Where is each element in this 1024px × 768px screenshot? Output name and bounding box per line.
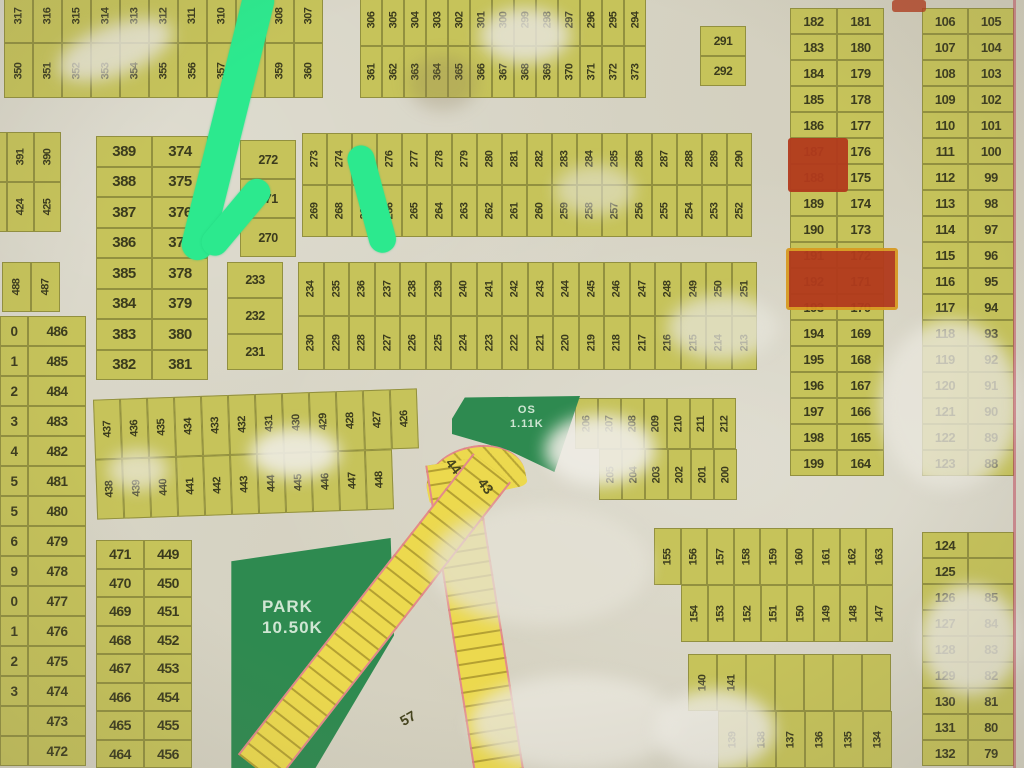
plot-cell xyxy=(0,736,28,766)
plot-cell: 233 xyxy=(227,262,283,298)
plot-cell: 350 xyxy=(4,43,33,98)
plot-row: 384379 xyxy=(96,289,208,320)
plot-row: 124 xyxy=(922,532,1014,558)
plot-number: 190 xyxy=(803,222,823,237)
plot-number: 455 xyxy=(157,717,179,733)
plot-cell: 182 xyxy=(790,8,837,34)
plot-number: 99 xyxy=(984,170,997,185)
plot-cell: 125 xyxy=(922,558,968,584)
plot-row: 12388 xyxy=(922,450,1014,476)
park-size-label: 10.50K xyxy=(262,617,323,638)
plot-row: 11893 xyxy=(922,320,1014,346)
plot-number: 424 xyxy=(14,199,26,216)
plot-cell: 450 xyxy=(144,569,192,598)
plot-number: 378 xyxy=(168,265,192,282)
plot-row: 466454 xyxy=(96,683,192,712)
plot-cell: 200 xyxy=(714,449,737,500)
plot-number: 270 xyxy=(258,231,277,245)
plot-row: 196167 xyxy=(790,372,884,398)
plot-cell: 287 xyxy=(652,133,677,185)
plot-number: 124 xyxy=(935,538,955,553)
plot-cell: 276 xyxy=(377,133,402,185)
plot-cell: 386 xyxy=(96,228,152,259)
plot-number: 237 xyxy=(381,281,393,298)
plot-row: 471449 xyxy=(96,540,192,569)
plot-row: 468452 xyxy=(96,626,192,655)
plot-number: 250 xyxy=(713,281,725,298)
plot-row: 12190 xyxy=(922,398,1014,424)
plot-number: 441 xyxy=(184,478,197,495)
plot-number: 136 xyxy=(813,731,825,748)
plot-cell: 300 xyxy=(492,0,514,46)
plot-cell: 381 xyxy=(152,350,208,381)
plot-cell: 265 xyxy=(402,185,427,237)
plot-number: 82 xyxy=(984,668,997,683)
plot-number: 222 xyxy=(509,335,521,352)
plot-cell: 454 xyxy=(144,683,192,712)
plot-row: 391390 xyxy=(0,132,61,182)
plot-number: 312 xyxy=(157,7,169,24)
plot-cell: 212 xyxy=(713,398,736,449)
plot-number: 83 xyxy=(984,642,997,657)
plot-cell: 139 xyxy=(718,711,747,768)
plot-cell: 131 xyxy=(922,714,968,740)
plot-number: 383 xyxy=(112,326,136,343)
plot-cell: 106 xyxy=(922,8,968,34)
plot-row: 12784 xyxy=(922,610,1014,636)
plot-number: 360 xyxy=(302,62,314,79)
plot-number: 116 xyxy=(935,274,954,289)
plot-cell: 190 xyxy=(790,216,837,242)
plot-cell: 156 xyxy=(681,528,708,585)
plot-number: 80 xyxy=(984,720,997,735)
plot-cell: 178 xyxy=(837,86,884,112)
plot-cell: 307 xyxy=(294,0,323,43)
plot-cell: 360 xyxy=(294,43,323,98)
plot-cell xyxy=(0,182,7,232)
plot-number: 425 xyxy=(41,199,53,216)
plot-number: 484 xyxy=(46,384,67,399)
plot-number: 256 xyxy=(633,203,645,220)
plot-number: 6 xyxy=(10,534,17,549)
plot-number: 359 xyxy=(273,62,285,79)
plot-cell: 114 xyxy=(922,216,968,242)
map-boundary-line xyxy=(1013,0,1016,768)
plot-number: 456 xyxy=(157,746,179,762)
plot-cell: 160 xyxy=(787,528,814,585)
plot-cell: 202 xyxy=(668,449,691,500)
plot-cell: 378 xyxy=(152,258,208,289)
plot-number: 4 xyxy=(10,444,17,459)
plot-row: 12883 xyxy=(922,636,1014,662)
plot-number: 297 xyxy=(563,12,575,29)
plot-cell: 151 xyxy=(761,585,788,642)
plot-number: 472 xyxy=(46,744,67,759)
plot-number: 138 xyxy=(755,731,767,748)
plot-number: 85 xyxy=(984,590,997,605)
plot-cell: 223 xyxy=(477,316,503,370)
plot-number: 486 xyxy=(46,324,67,339)
plot-row: 11497 xyxy=(922,216,1014,242)
plot-cell: 371 xyxy=(580,46,602,98)
block-291: 291292 xyxy=(700,26,746,86)
plot-cell: 138 xyxy=(747,711,776,768)
plot-cell: 352 xyxy=(62,43,91,98)
plot-cell: 249 xyxy=(681,262,707,316)
block-206: 206207208209210211212205204203202201200 xyxy=(575,398,736,500)
plot-cell: 84 xyxy=(968,610,1014,636)
plot-number: 219 xyxy=(585,335,597,352)
plot-row: 195168 xyxy=(790,346,884,372)
plot-cell: 96 xyxy=(968,242,1014,268)
plot-cell: 237 xyxy=(375,262,401,316)
plot-number: 434 xyxy=(182,418,195,435)
plot-cell: 439 xyxy=(122,458,151,519)
plot-cell: 483 xyxy=(28,406,86,436)
plot-number: 149 xyxy=(821,605,833,622)
plot-number: 231 xyxy=(245,345,264,359)
plot-cell: 205 xyxy=(599,449,622,500)
plot-cell: 317 xyxy=(4,0,33,43)
plot-cell: 261 xyxy=(502,185,527,237)
plot-number: 295 xyxy=(607,12,619,29)
plot-number: 389 xyxy=(112,143,136,160)
plot-number: 184 xyxy=(803,66,823,81)
plot-number: 104 xyxy=(981,40,1001,55)
plot-number: 487 xyxy=(39,279,51,296)
plot-cell: 305 xyxy=(382,0,404,46)
plot-number: 251 xyxy=(738,281,750,298)
plot-number: 290 xyxy=(733,151,745,168)
plot-cell: 163 xyxy=(866,528,893,585)
plot-cell: 166 xyxy=(837,398,884,424)
plot-number: 303 xyxy=(431,12,443,29)
plot-cell: 424 xyxy=(7,182,34,232)
plot-number: 306 xyxy=(365,12,377,29)
plot-cell: 304 xyxy=(404,0,426,46)
plot-cell: 134 xyxy=(863,711,892,768)
plot-cell: 225 xyxy=(426,316,452,370)
plot-cell: 219 xyxy=(579,316,605,370)
plot-number: 95 xyxy=(984,274,997,289)
plot-number: 362 xyxy=(387,64,399,81)
plot-row: 205204203202201200 xyxy=(599,449,737,500)
plot-cell: 210 xyxy=(667,398,690,449)
plot-cell: 198 xyxy=(790,424,837,450)
plot-number: 176 xyxy=(850,144,870,159)
plot-cell: 169 xyxy=(837,320,884,346)
plot-number: 384 xyxy=(112,295,136,312)
plot-number: 213 xyxy=(738,335,750,352)
plot-cell: 452 xyxy=(144,626,192,655)
plot-number: 433 xyxy=(209,417,222,434)
plot-number: 285 xyxy=(608,151,620,168)
plot-number: 180 xyxy=(850,40,870,55)
plot-cell: 152 xyxy=(734,585,761,642)
plot-number: 126 xyxy=(935,590,955,605)
plot-cell: 183 xyxy=(790,34,837,60)
plot-cell: 467 xyxy=(96,654,144,683)
plot-cell: 185 xyxy=(790,86,837,112)
plot-number: 436 xyxy=(128,420,141,437)
plot-cell: 9 xyxy=(0,556,28,586)
plot-cell: 470 xyxy=(96,569,144,598)
plot-cell: 310 xyxy=(207,0,236,43)
plot-cell: 263 xyxy=(452,185,477,237)
plot-number: 111 xyxy=(936,144,955,159)
plot-number: 470 xyxy=(109,575,131,591)
plot-cell: 294 xyxy=(624,0,646,46)
plot-number: 121 xyxy=(935,404,955,419)
plot-cell: 150 xyxy=(787,585,814,642)
plot-cell: 284 xyxy=(577,133,602,185)
plot-number: 435 xyxy=(155,419,168,436)
plot-number: 234 xyxy=(305,281,317,298)
plot-cell: 119 xyxy=(922,346,968,372)
plot-cell: 97 xyxy=(968,216,1014,242)
plot-number: 387 xyxy=(112,204,136,221)
plot-number: 167 xyxy=(850,378,870,393)
plot-number: 122 xyxy=(935,430,955,445)
plot-cell: 111 xyxy=(922,138,968,164)
block-437: 4374364354344334324314304294284274264384… xyxy=(93,388,421,519)
plot-number: 196 xyxy=(803,378,823,393)
plot-cell: 288 xyxy=(677,133,702,185)
plot-cell: 253 xyxy=(702,185,727,237)
plot-number: 169 xyxy=(850,326,870,341)
plot-number: 371 xyxy=(585,64,597,81)
plot-number: 302 xyxy=(453,12,465,29)
plot-cell: 127 xyxy=(922,610,968,636)
plot-number: 308 xyxy=(273,7,285,24)
plot-cell: 211 xyxy=(690,398,713,449)
plot-cell: 298 xyxy=(536,0,558,46)
plot-number: 233 xyxy=(245,273,264,287)
plot-number: 2 xyxy=(10,384,17,399)
plot-number: 351 xyxy=(41,62,53,79)
plot-cell: 260 xyxy=(527,185,552,237)
plot-cell: 105 xyxy=(968,8,1014,34)
plot-cell: 153 xyxy=(708,585,735,642)
plot-row: 140141 xyxy=(688,654,891,711)
plot-cell: 477 xyxy=(28,586,86,616)
plot-number: 150 xyxy=(794,605,806,622)
plot-number: 209 xyxy=(649,415,661,432)
plot-cell: 431 xyxy=(255,393,284,454)
plot-cell: 453 xyxy=(144,654,192,683)
plot-cell: 199 xyxy=(790,450,837,476)
plot-cell xyxy=(0,132,7,182)
plot-number: 160 xyxy=(794,548,806,565)
plot-cell: 184 xyxy=(790,60,837,86)
plot-cell: 94 xyxy=(968,294,1014,320)
plot-row: 190173 xyxy=(790,216,884,242)
plot-cell xyxy=(968,532,1014,558)
plot-number: 259 xyxy=(558,203,570,220)
plot-number: 5 xyxy=(10,504,17,519)
plot-number: 292 xyxy=(714,64,733,78)
plot-number: 238 xyxy=(407,281,419,298)
plot-number: 264 xyxy=(433,203,445,220)
plot-cell: 283 xyxy=(552,133,577,185)
plot-cell: 82 xyxy=(968,662,1014,688)
plot-cell: 434 xyxy=(174,396,203,457)
plot-cell: 135 xyxy=(834,711,863,768)
plot-cell: 216 xyxy=(655,316,681,370)
plot-cell: 356 xyxy=(178,43,207,98)
plot-cell: 149 xyxy=(814,585,841,642)
highlighted-plots-191-192 xyxy=(786,248,898,310)
plot-number: 247 xyxy=(636,281,648,298)
plot-cell xyxy=(862,654,891,711)
plot-cell: 246 xyxy=(604,262,630,316)
plot-number: 352 xyxy=(70,62,82,79)
plot-cell: 1 xyxy=(0,346,28,376)
plot-number: 97 xyxy=(984,222,997,237)
plot-number: 482 xyxy=(46,444,67,459)
plot-number: 379 xyxy=(168,295,192,312)
plot-cell: 430 xyxy=(282,392,311,453)
plot-cell: 100 xyxy=(968,138,1014,164)
plot-number: 373 xyxy=(629,64,641,81)
plot-cell: 161 xyxy=(813,528,840,585)
plot-number: 429 xyxy=(317,413,330,430)
plot-number: 135 xyxy=(842,731,854,748)
plot-cell: 427 xyxy=(363,389,392,450)
plot-number: 221 xyxy=(534,335,546,352)
plot-cell: 91 xyxy=(968,372,1014,398)
plot-cell: 465 xyxy=(96,711,144,740)
plot-number: 464 xyxy=(109,746,131,762)
plot-number: 131 xyxy=(935,720,955,735)
plot-cell: 472 xyxy=(28,736,86,766)
plot-number: 276 xyxy=(383,151,395,168)
plot-number: 298 xyxy=(541,12,553,29)
plot-row: 13081 xyxy=(922,688,1014,714)
plot-cell: 154 xyxy=(681,585,708,642)
plot-cell: 359 xyxy=(265,43,294,98)
plot-number: 93 xyxy=(984,326,997,341)
plot-cell: 189 xyxy=(790,190,837,216)
plot-number: 228 xyxy=(356,335,368,352)
plot-row: 469451 xyxy=(96,597,192,626)
plot-cell: 115 xyxy=(922,242,968,268)
plot-cell: 103 xyxy=(968,60,1014,86)
plot-cell: 95 xyxy=(968,268,1014,294)
plot-number: 127 xyxy=(935,616,955,631)
plot-cell: 141 xyxy=(717,654,746,711)
plot-cell: 239 xyxy=(426,262,452,316)
plot-cell: 488 xyxy=(2,262,31,312)
plot-number: 240 xyxy=(458,281,470,298)
plot-row: 2342352362372382392402412422432442452462… xyxy=(298,262,757,316)
plot-number: 84 xyxy=(984,616,997,631)
plot-number: 120 xyxy=(935,378,955,393)
plot-number: 155 xyxy=(661,548,673,565)
plot-cell: 391 xyxy=(7,132,34,182)
plot-number: 367 xyxy=(497,64,509,81)
plot-cell: 373 xyxy=(624,46,646,98)
plot-cell: 443 xyxy=(230,454,259,515)
plot-number: 139 xyxy=(726,731,738,748)
plot-number: 159 xyxy=(767,548,779,565)
plot-row: 350351352353354355356357358359360 xyxy=(4,43,323,98)
plot-number: 105 xyxy=(981,14,1001,29)
plot-number: 0 xyxy=(10,594,17,609)
plot-number: 280 xyxy=(483,151,495,168)
plot-number: 310 xyxy=(215,7,227,24)
plot-cell: 232 xyxy=(227,298,283,334)
plot-number: 473 xyxy=(46,714,67,729)
plot-cell: 174 xyxy=(837,190,884,216)
plot-row: 11695 xyxy=(922,268,1014,294)
plot-cell xyxy=(746,654,775,711)
plot-number: 364 xyxy=(431,64,443,81)
plot-number: 134 xyxy=(871,731,883,748)
plot-row: 361362363364365366367368369370371372373 xyxy=(360,46,646,98)
plot-number: 284 xyxy=(583,151,595,168)
plot-cell: 0 xyxy=(0,316,28,346)
plot-cell: 155 xyxy=(654,528,681,585)
plot-cell: 180 xyxy=(837,34,884,60)
plot-cell: 473 xyxy=(28,706,86,736)
plot-number: 199 xyxy=(803,456,823,471)
plot-number: 257 xyxy=(608,203,620,220)
plot-number: 254 xyxy=(683,203,695,220)
plot-number: 182 xyxy=(803,14,823,29)
plot-cell: 129 xyxy=(922,662,968,688)
plot-number: 166 xyxy=(850,404,870,419)
plot-cell: 113 xyxy=(922,190,968,216)
edge-488: 488487 xyxy=(2,262,60,312)
plot-cell xyxy=(833,654,862,711)
plot-row: 12685 xyxy=(922,584,1014,610)
plot-number: 98 xyxy=(984,196,997,211)
plot-number: 475 xyxy=(46,654,67,669)
plot-number: 3 xyxy=(10,414,17,429)
plot-cell: 285 xyxy=(602,133,627,185)
plot-cell: 487 xyxy=(31,262,60,312)
plot-cell: 432 xyxy=(228,394,257,455)
plot-number: 258 xyxy=(583,203,595,220)
plot-number: 474 xyxy=(46,684,67,699)
plot-cell: 90 xyxy=(968,398,1014,424)
plot-cell: 291 xyxy=(700,26,746,56)
plot-number: 236 xyxy=(356,281,368,298)
plot-cell: 466 xyxy=(96,683,144,712)
plot-row: 139138137136135134 xyxy=(718,711,892,768)
plot-cell: 256 xyxy=(627,185,652,237)
plot-number: 445 xyxy=(292,474,305,491)
plot-number: 130 xyxy=(935,694,955,709)
plot-number: 268 xyxy=(333,203,345,220)
plot-cell: 230 xyxy=(298,316,324,370)
plot-number: 108 xyxy=(935,66,955,81)
plot-cell: 264 xyxy=(427,185,452,237)
plot-number: 3 xyxy=(10,684,17,699)
plot-number: 89 xyxy=(984,430,997,445)
plot-cell: 83 xyxy=(968,636,1014,662)
plot-number: 204 xyxy=(627,466,639,483)
plot-cell: 384 xyxy=(96,289,152,320)
plot-cell: 444 xyxy=(257,453,286,514)
plot-number: 218 xyxy=(611,335,623,352)
plot-cell: 101 xyxy=(968,112,1014,138)
plot-number: 444 xyxy=(265,475,278,492)
plot-number: 79 xyxy=(984,746,997,761)
plot-cell: 485 xyxy=(28,346,86,376)
plot-cell: 279 xyxy=(452,133,477,185)
